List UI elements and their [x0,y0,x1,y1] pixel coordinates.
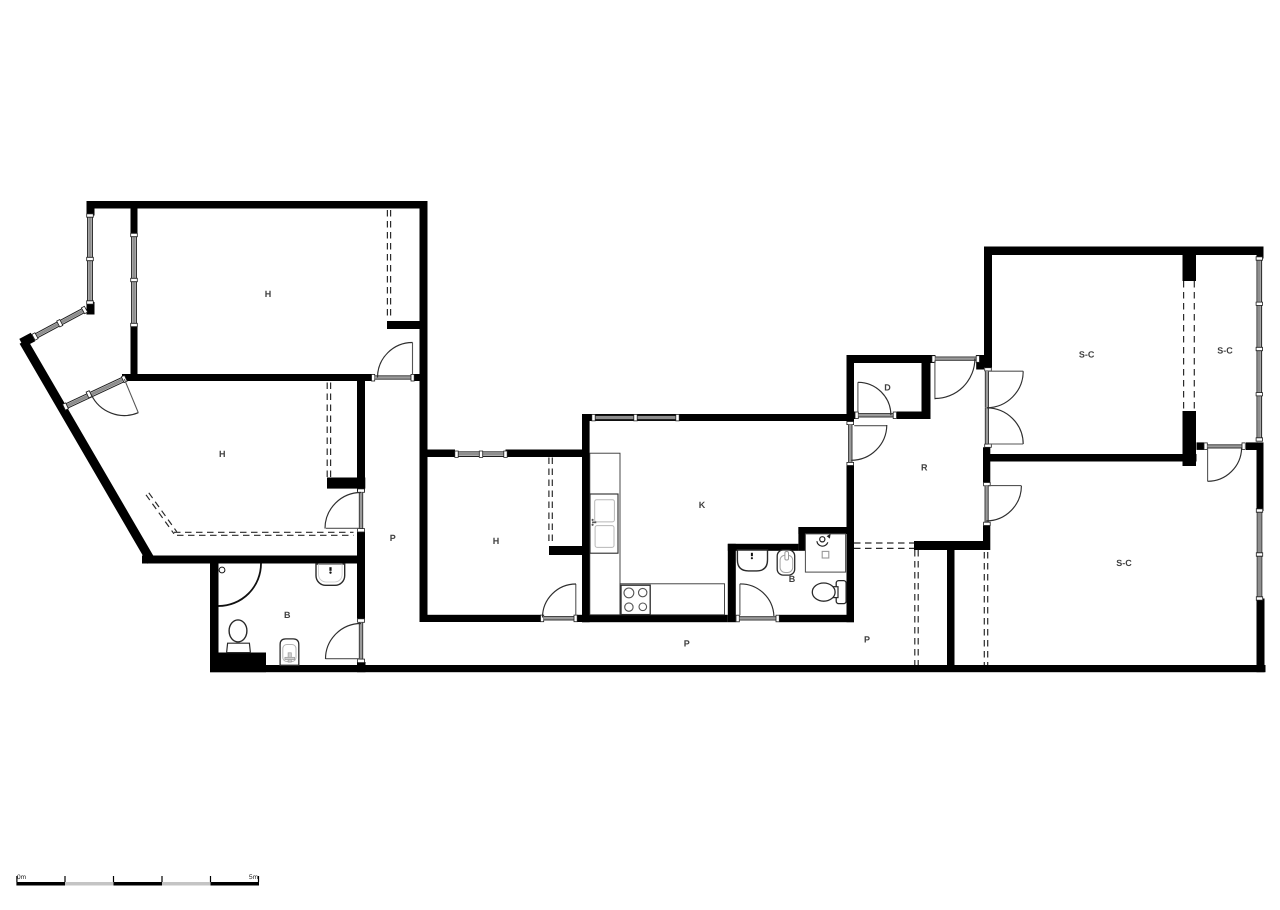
svg-text:H: H [493,536,500,546]
svg-text:D: D [884,382,891,392]
svg-text:5m: 5m [249,874,258,881]
svg-text:P: P [684,639,690,649]
svg-text:H: H [265,289,272,299]
svg-text:P: P [390,533,396,543]
svg-text:S-C: S-C [1079,350,1095,360]
svg-text:S-C: S-C [1217,345,1233,355]
svg-text:P: P [864,635,870,645]
svg-text:B: B [789,574,796,584]
svg-text:R: R [921,463,928,473]
svg-text:S-C: S-C [1116,558,1132,568]
svg-text:0m: 0m [17,874,26,881]
svg-text:B: B [284,610,291,620]
svg-text:K: K [699,500,706,510]
svg-text:H: H [219,449,226,459]
